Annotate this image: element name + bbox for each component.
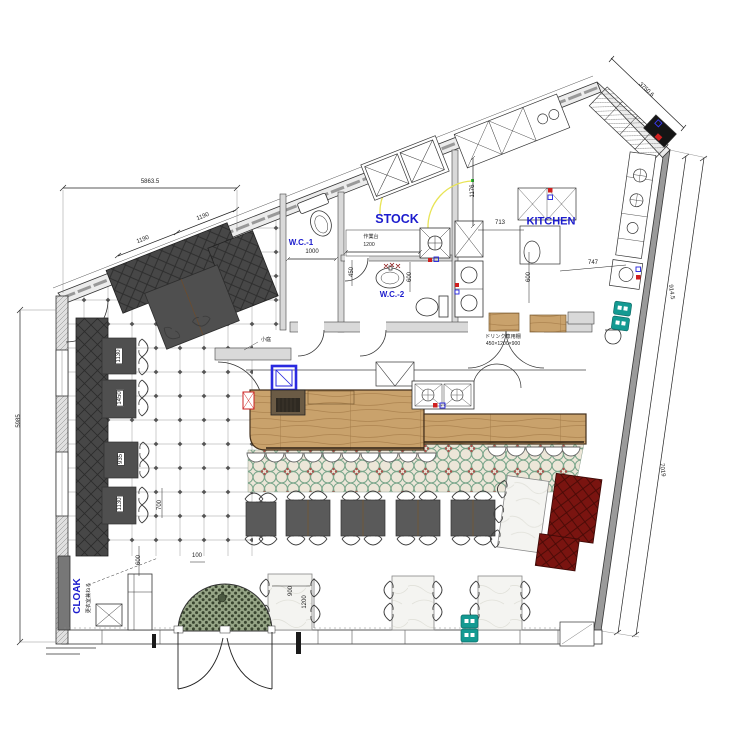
dark-table-row (246, 500, 495, 536)
room-label-stock: STOCK (375, 213, 419, 226)
bar-counter (243, 313, 586, 450)
dim-work-counter: 1200 (363, 242, 374, 247)
drink-shelf-label: ドリンク専用棚 (485, 334, 521, 339)
dim-wc1-width: 1000 (305, 249, 318, 255)
dim-left-wall: 5985 (16, 414, 22, 427)
work-counter-label: 作業台 (363, 234, 378, 239)
dim-stock-kitchen: 1176 (470, 185, 476, 198)
table-size-label: 1450 (116, 389, 124, 406)
dim-bench-gap: 700 (157, 500, 163, 510)
dim-entry-offset: 100 (192, 553, 202, 559)
dim-wc2-width: 600 (407, 272, 413, 282)
table-size-label: 935 (117, 452, 125, 466)
room-label-cloak: CLOAK (73, 578, 83, 614)
room-label-kitchen: KITCHEN (527, 217, 576, 228)
table-size-label: 1130 (115, 348, 123, 365)
dim-kitchen-depth: 600 (526, 272, 532, 282)
dim-table-width: 900 (288, 586, 294, 596)
dim-kitchen-right: 747 (588, 260, 598, 266)
dim-top-overall: 5863.5 (141, 179, 159, 185)
dim-kitchen-left: 713 (495, 220, 505, 226)
stock-shelving (361, 94, 570, 200)
dim-table-length: 1200 (302, 595, 308, 608)
floorplan-graphics (0, 0, 750, 750)
garden-label: 小庭 (261, 337, 271, 342)
cloak-note-label: 更衣室兼ねる (86, 583, 91, 614)
drink-shelf-size-label: 450×1200×900 (486, 341, 520, 346)
floor-plan-page: W.C.-1 STOCK W.C.-2 KITCHEN CLOAK 更衣室兼ねる… (0, 0, 750, 750)
table-size-label: 1130 (116, 496, 124, 513)
room-label-wc2: W.C.-2 (380, 291, 404, 299)
dim-wc2-depth: 450 (349, 267, 355, 277)
dim-cloak-width: 600 (136, 555, 142, 565)
room-label-wc1: W.C.-1 (289, 239, 313, 247)
